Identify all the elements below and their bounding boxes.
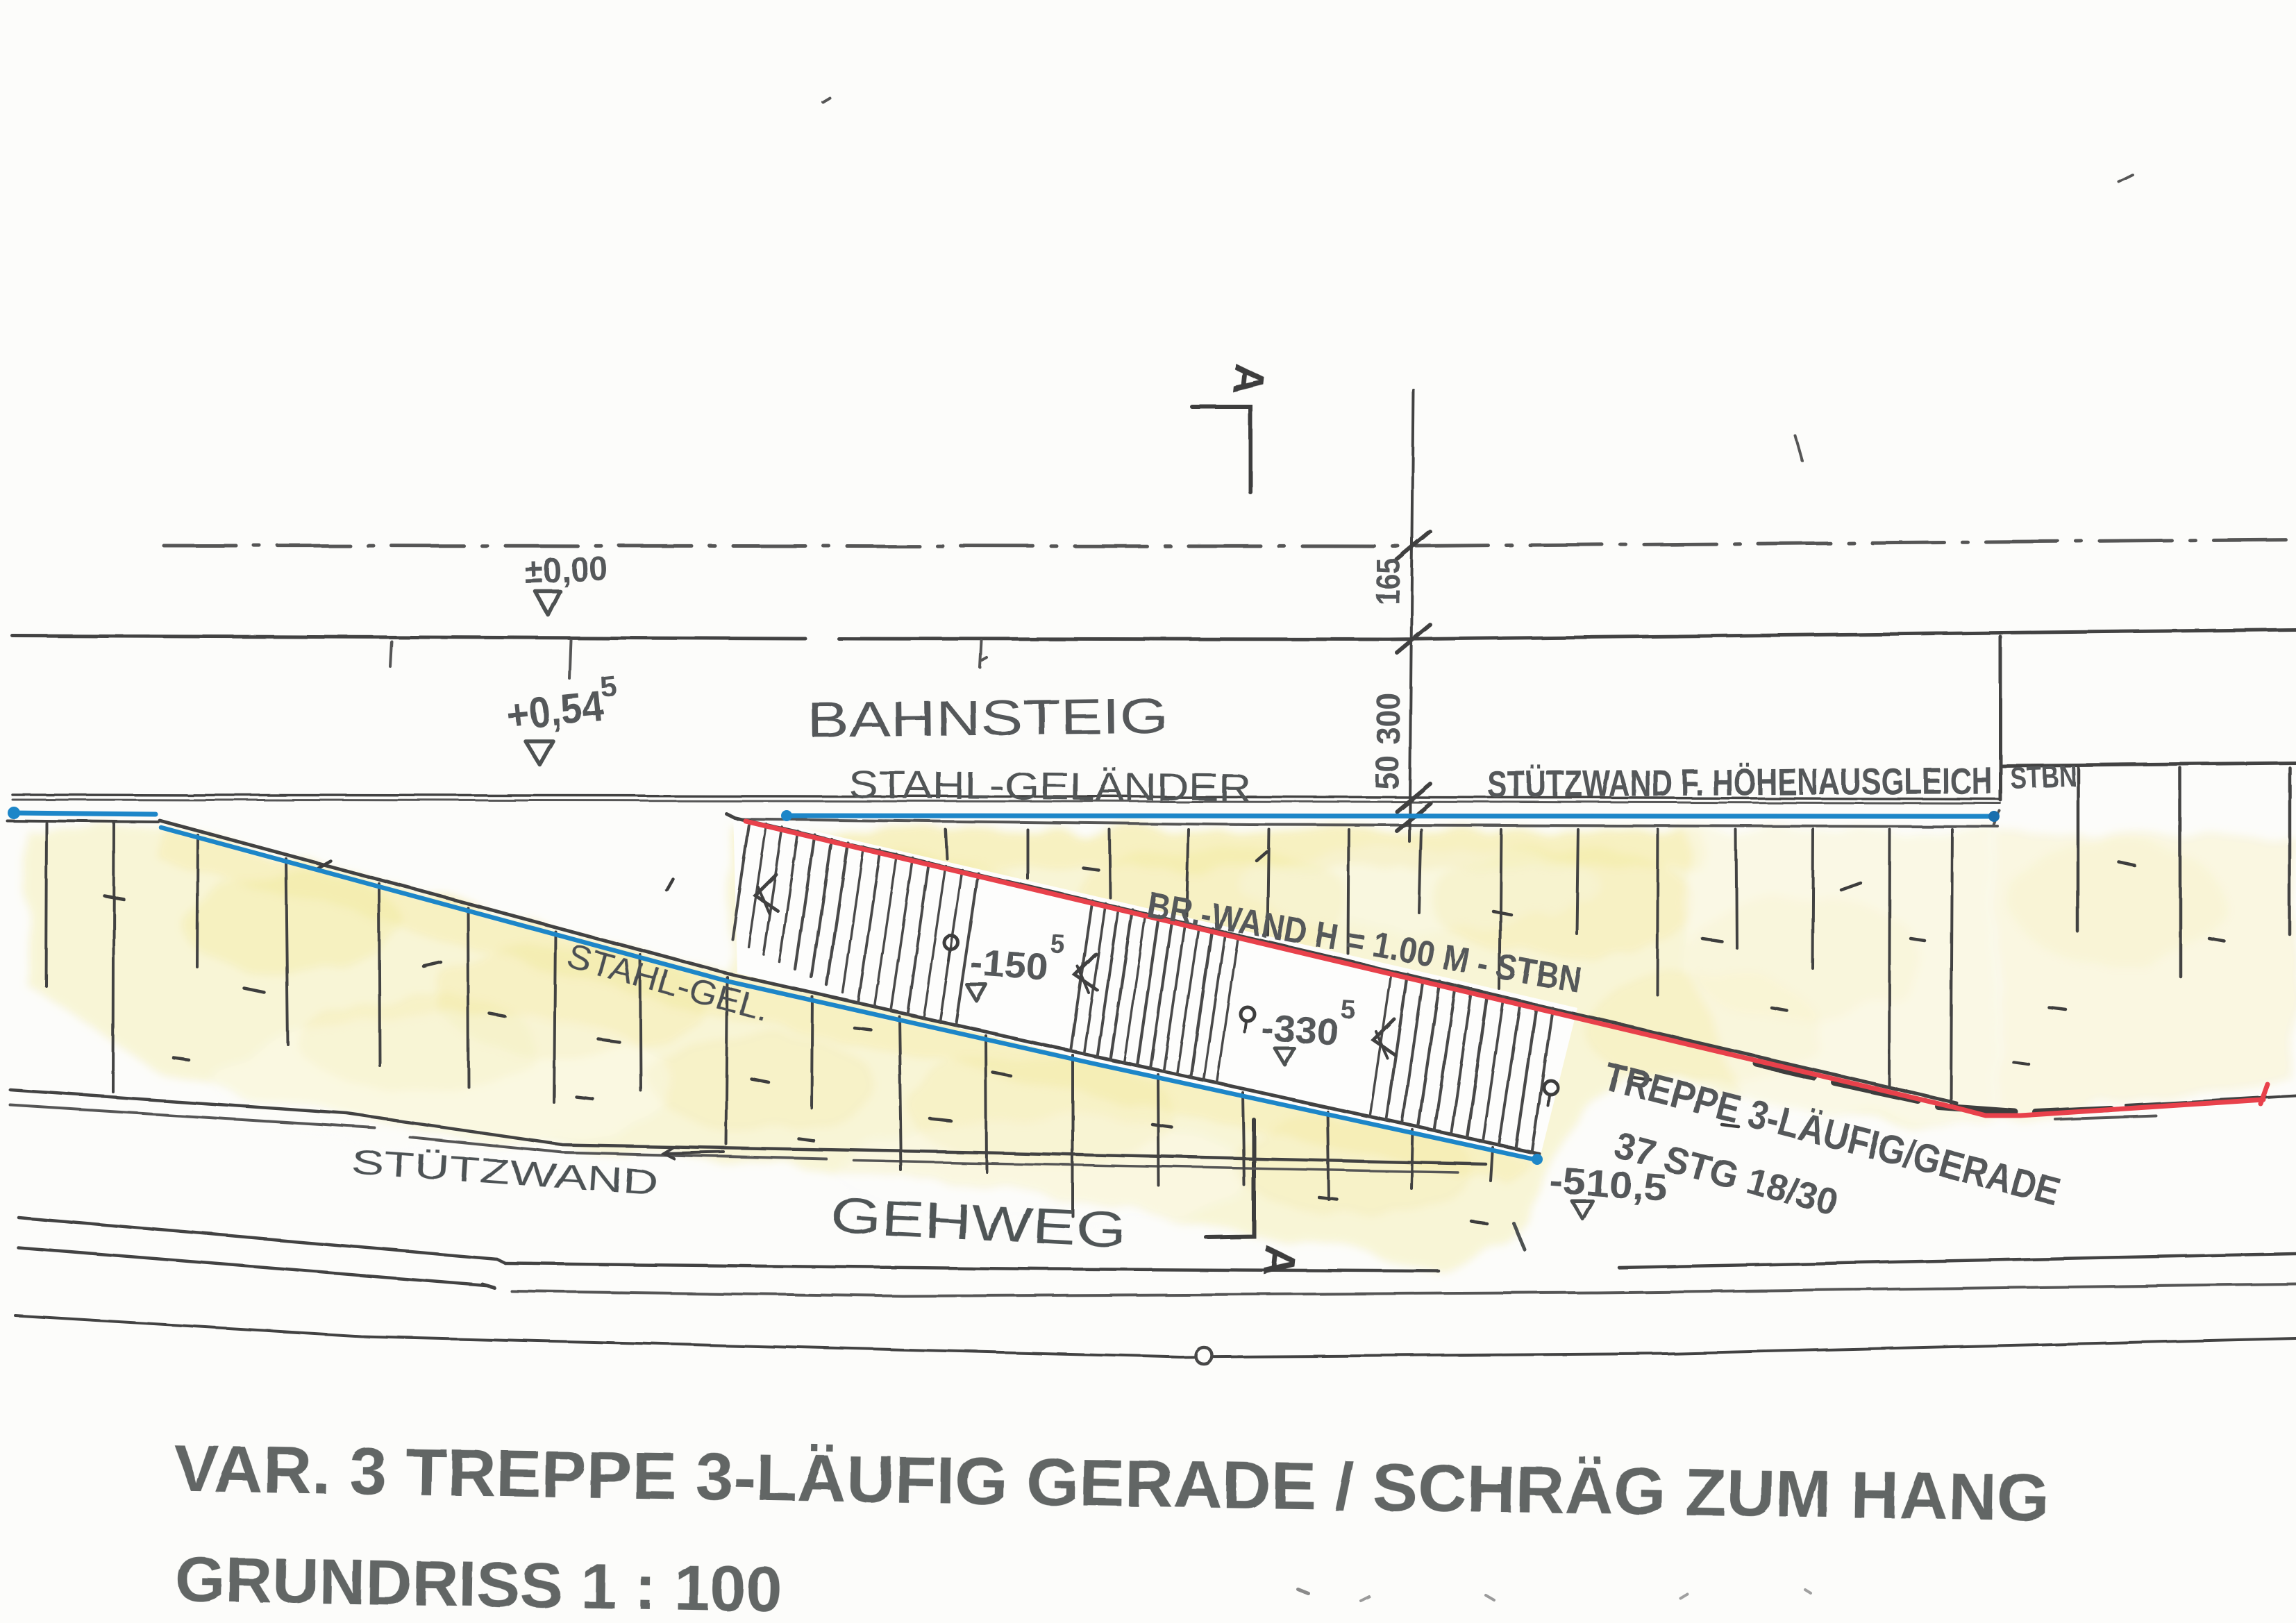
svg-text:STBN: STBN (2010, 759, 2078, 796)
svg-text:300: 300 (1371, 693, 1407, 744)
svg-text:A: A (1223, 362, 1273, 398)
svg-text:5: 5 (1339, 995, 1356, 1025)
svg-text:STÜTZWAND F. HÖHENAUSGLEICH: STÜTZWAND F. HÖHENAUSGLEICH (1487, 760, 1993, 805)
svg-text:GRUNDRISS 1 : 100: GRUNDRISS 1 : 100 (175, 1544, 783, 1623)
svg-text:165: 165 (1371, 558, 1407, 605)
svg-text:50: 50 (1369, 755, 1405, 790)
svg-text:5: 5 (598, 669, 618, 703)
svg-text:STAHL-GELÄNDER: STAHL-GELÄNDER (848, 762, 1252, 809)
svg-text:A: A (1253, 1243, 1304, 1279)
svg-text:+0,54: +0,54 (504, 682, 606, 740)
svg-text:±0,00: ±0,00 (523, 549, 608, 591)
svg-text:-330: -330 (1259, 1007, 1340, 1054)
svg-text:5: 5 (1049, 930, 1066, 959)
svg-text:-510,5: -510,5 (1548, 1159, 1668, 1209)
svg-text:-150: -150 (969, 941, 1049, 989)
svg-text:BAHNSTEIG: BAHNSTEIG (807, 689, 1168, 748)
